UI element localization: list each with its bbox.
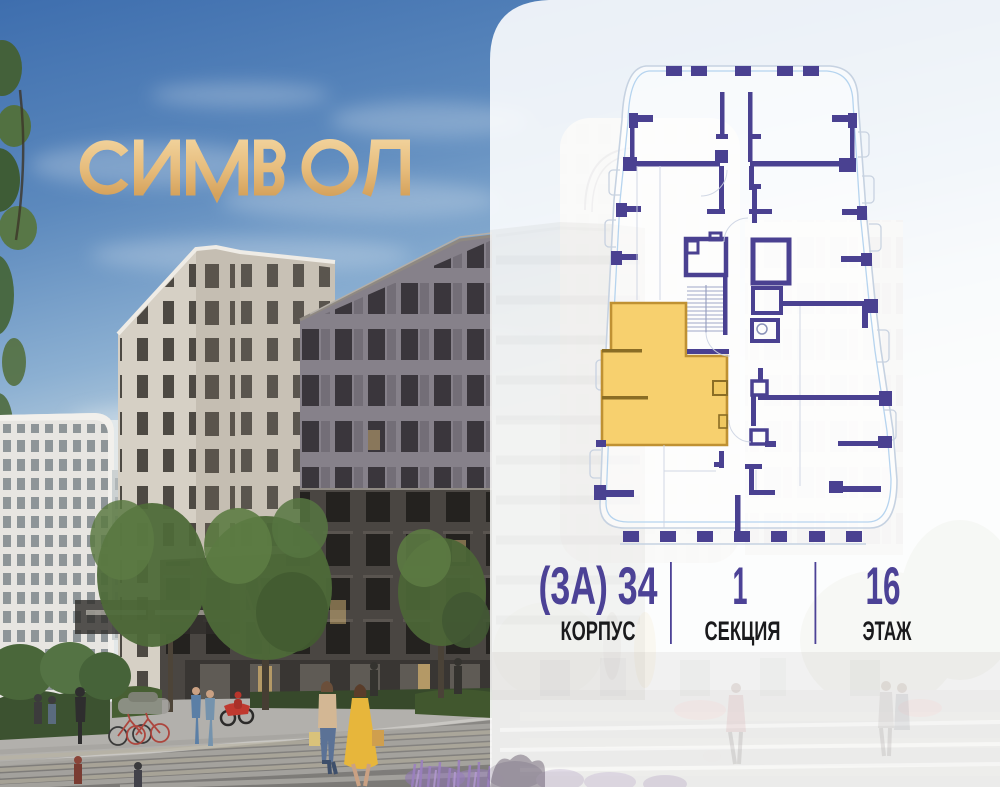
svg-text:ЭТАЖ: ЭТАЖ bbox=[863, 616, 913, 646]
svg-text:1: 1 bbox=[733, 557, 748, 616]
svg-text:КОРПУС: КОРПУС bbox=[561, 616, 636, 646]
svg-text:(3А) 34: (3А) 34 bbox=[539, 557, 658, 616]
svg-text:16: 16 bbox=[866, 557, 901, 616]
svg-text:СЕКЦИЯ: СЕКЦИЯ bbox=[705, 616, 781, 646]
